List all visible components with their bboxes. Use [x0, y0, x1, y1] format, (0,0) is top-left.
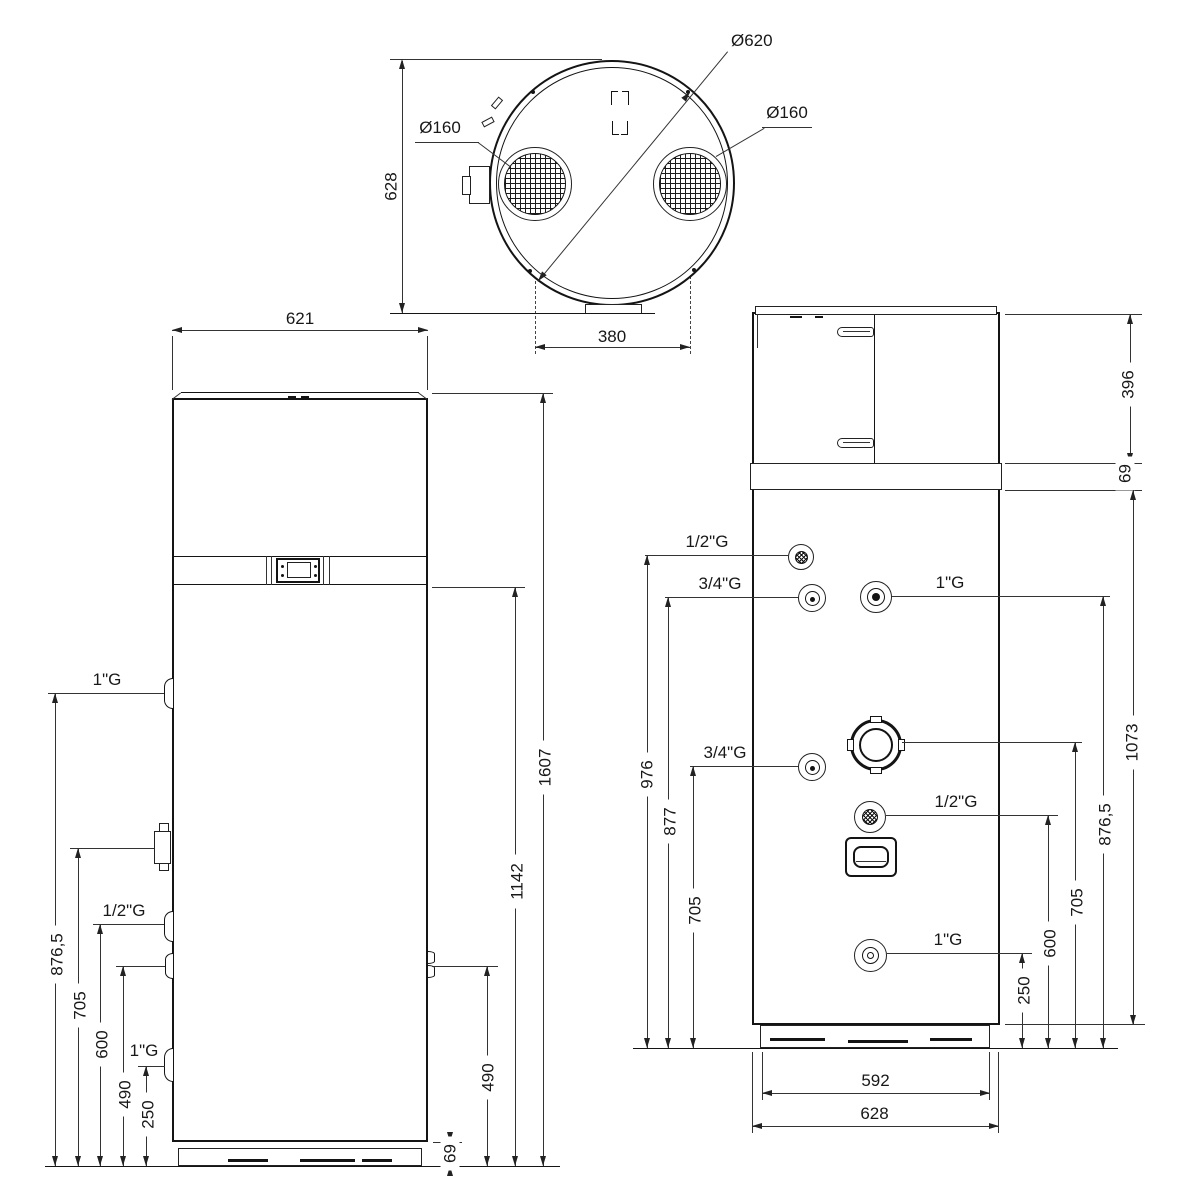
dim-side-top-section: 396 — [1119, 363, 1138, 407]
mount-dot — [692, 268, 696, 272]
front-top-cap — [181, 392, 419, 393]
mount-dot — [528, 269, 532, 273]
band-separator — [329, 556, 330, 585]
dim-front-width: 621 — [280, 309, 320, 328]
dim-side-600: 600 — [1041, 922, 1060, 966]
dim-side-250: 250 — [1015, 969, 1034, 1013]
dim-front-h3: 600 — [93, 1023, 112, 1067]
latch-bump — [428, 951, 435, 964]
dim-depth: 628 — [382, 167, 401, 207]
side-foot — [770, 1038, 825, 1041]
mount-dot — [531, 90, 535, 94]
side-floor-line — [633, 1048, 1118, 1049]
dim-front-h5: 250 — [139, 1093, 158, 1137]
dim-arrow — [989, 1123, 999, 1129]
front-body — [172, 398, 428, 1142]
side-clip-inner — [462, 176, 471, 195]
leader-port-top — [48, 693, 164, 694]
band-separator — [266, 556, 267, 585]
port-label-p5: 1/2"G — [916, 792, 996, 811]
dim-arrow — [644, 555, 650, 565]
flange-tab-n — [870, 716, 882, 723]
dim-arrow — [665, 597, 671, 607]
front-top-tick — [301, 396, 309, 398]
dim-arrow — [172, 327, 182, 333]
side-seam — [874, 315, 875, 463]
dim-arrow — [540, 393, 546, 403]
side-body — [752, 312, 1000, 1025]
dim-front-band: 1142 — [508, 855, 527, 909]
dim-arrow — [512, 1156, 518, 1166]
leader-grille-right — [762, 127, 812, 128]
leader-grille-left — [415, 142, 479, 143]
port-label-p1: 1/2"G — [668, 532, 746, 551]
dim-side-705-left: 705 — [686, 889, 705, 933]
dim-arrow — [75, 1156, 81, 1166]
side-band — [750, 463, 1002, 490]
ext-line-total — [432, 393, 553, 394]
dim-side-705-right: 705 — [1068, 881, 1087, 925]
port-bump-small — [165, 953, 173, 979]
control-band-bottom — [172, 584, 428, 585]
side-left-notch — [757, 314, 758, 348]
display-screen[interactable] — [287, 562, 311, 578]
dim-line-duct-spacing — [535, 347, 690, 348]
dim-arrow — [665, 1038, 671, 1048]
dim-front-latch: 490 — [479, 1056, 498, 1100]
leader-port-middle — [93, 924, 164, 925]
hinge-bottom — [837, 438, 874, 448]
dim-front-h4: 490 — [116, 1073, 135, 1117]
front-floor-line — [45, 1166, 560, 1167]
band-separator — [323, 556, 324, 585]
dim-line-976 — [647, 555, 648, 1048]
dim-side-tank: 1073 — [1123, 716, 1142, 770]
port-p5-inner — [862, 809, 878, 825]
port-p1-inner — [795, 551, 808, 564]
side-clip-outer — [469, 166, 490, 204]
hinge-bottom-line — [843, 442, 870, 443]
side-foot — [930, 1038, 972, 1041]
dim-arrow — [1045, 1038, 1051, 1048]
dim-arrow — [644, 1038, 650, 1048]
port-label-p6: 1"G — [924, 930, 972, 949]
leader-flange — [70, 848, 154, 849]
dim-arrow — [75, 848, 81, 858]
base-line-top-view — [390, 313, 655, 314]
air-grille-left-mesh — [504, 153, 566, 215]
service-slot-line — [856, 861, 886, 862]
dim-arrow — [762, 1090, 772, 1096]
leader-p6 — [887, 953, 1032, 954]
port-label-bottom: 1"G — [122, 1041, 166, 1060]
side-top-tick — [815, 316, 823, 318]
dim-arrow — [1072, 1038, 1078, 1048]
dim-arrow — [97, 924, 103, 934]
dim-line-front-width — [172, 330, 428, 331]
dim-side-base-width: 592 — [853, 1071, 898, 1090]
dim-arrow — [690, 1038, 696, 1048]
dim-arrow — [97, 1156, 103, 1166]
front-foot — [300, 1159, 355, 1162]
port-p2-center — [810, 597, 815, 602]
dim-front-total: 1607 — [536, 741, 555, 795]
leader-p3 — [892, 596, 1110, 597]
dim-arrow — [690, 766, 696, 776]
technical-drawing-heat-pump-water-heater: Ø620 Ø160 Ø160 628 380 — [0, 0, 1200, 1200]
ext-line-side-top — [1005, 314, 1142, 315]
air-grille-right-mesh — [659, 153, 721, 215]
display-button[interactable] — [314, 574, 317, 577]
dim-front-h2: 705 — [71, 984, 90, 1028]
dim-duct-spacing: 380 — [592, 327, 632, 346]
dim-arrow — [512, 587, 518, 597]
front-plinth — [178, 1148, 422, 1166]
port-bump-top — [164, 678, 173, 709]
slot-bracket-top-left — [611, 91, 618, 105]
slot-bracket-bottom-right — [621, 121, 628, 135]
band-separator — [271, 556, 272, 585]
side-foot — [848, 1040, 908, 1043]
hinge-top — [837, 327, 874, 337]
leader-p2 — [665, 597, 798, 598]
dim-arrow — [680, 344, 690, 350]
dim-arrow — [418, 327, 428, 333]
port-label-p4: 3/4"G — [687, 743, 763, 762]
ext-line — [427, 336, 428, 390]
dim-arrow — [143, 1066, 149, 1076]
dim-grille-left-dia: Ø160 — [413, 118, 467, 137]
flange-bracket — [154, 831, 171, 864]
front-foot — [362, 1159, 392, 1162]
edge-tab-upper — [491, 96, 503, 109]
slot-bracket-top-right — [622, 91, 629, 105]
dim-arrow — [52, 693, 58, 703]
dim-line-depth — [402, 61, 403, 313]
dim-arrow — [1127, 314, 1133, 324]
dim-arrow — [1130, 1015, 1136, 1025]
port-bump-middle — [164, 911, 173, 942]
dim-arrow — [399, 303, 405, 313]
dim-grille-right-dia: Ø160 — [760, 103, 814, 122]
ext-line-628-left — [752, 1052, 753, 1133]
dim-arrow — [1130, 490, 1136, 500]
dim-side-976: 976 — [638, 753, 657, 797]
dim-arrow — [484, 1156, 490, 1166]
port-label-p2: 3/4"G — [682, 574, 758, 593]
dim-arrow — [143, 1156, 149, 1166]
dim-line-592 — [762, 1093, 990, 1094]
dim-overall-dia: Ø620 — [731, 31, 787, 50]
leader-flange — [902, 742, 1082, 743]
display-button[interactable] — [314, 565, 317, 568]
dim-side-877: 877 — [661, 800, 680, 844]
flange-bracket-tab-top — [159, 823, 169, 832]
port-p3-center — [872, 593, 880, 601]
flange-tab-s — [870, 767, 882, 774]
dim-side-overall-width: 628 — [852, 1104, 897, 1123]
dim-arrow — [1045, 815, 1051, 825]
dim-arrow — [1100, 1038, 1106, 1048]
port-label-middle: 1/2"G — [92, 901, 156, 920]
dim-arrow — [980, 1090, 990, 1096]
slot-bracket-bottom-left — [612, 121, 619, 135]
dim-arrow — [1100, 596, 1106, 606]
display-button[interactable] — [281, 565, 284, 568]
dim-side-8765: 876,5 — [1096, 796, 1115, 854]
flange-tab-w — [847, 739, 854, 751]
dim-arrow — [484, 966, 490, 976]
leader-p5 — [886, 815, 1058, 816]
ext-line-628-right — [998, 1052, 999, 1133]
hinge-top-line — [843, 331, 870, 332]
ext-line-top — [390, 59, 602, 60]
flange-inner — [859, 728, 893, 762]
ext-line — [172, 336, 173, 390]
port-label-p3: 1"G — [926, 573, 974, 592]
dim-arrow — [535, 344, 545, 350]
side-plinth — [760, 1025, 990, 1048]
dim-arrow — [540, 1156, 546, 1166]
dim-arrow — [120, 1156, 126, 1166]
leader-p4 — [690, 766, 798, 767]
port-p6-center — [867, 952, 874, 959]
display-button[interactable] — [281, 574, 284, 577]
port-label-top: 1"G — [83, 670, 131, 689]
dim-arrow — [399, 59, 405, 69]
side-top-cap — [755, 306, 997, 315]
dim-arrow — [120, 966, 126, 976]
dim-arrow — [1019, 1038, 1025, 1048]
front-top-tick — [288, 396, 296, 398]
leader-p1 — [645, 555, 788, 556]
dim-line-h4 — [123, 966, 124, 1166]
dim-arrow — [1019, 953, 1025, 963]
dim-arrow — [52, 1156, 58, 1166]
front-foot — [228, 1159, 268, 1162]
side-top-tick — [790, 316, 802, 318]
dim-arrow — [752, 1123, 762, 1129]
service-slot-inner — [853, 846, 889, 868]
dim-front-plinth: 69 — [441, 1137, 460, 1171]
dim-line-628 — [752, 1126, 999, 1127]
ext-line-tank-bottom — [1005, 1024, 1145, 1025]
port-p4-center — [810, 766, 815, 771]
dim-front-h1: 876,5 — [48, 926, 67, 984]
flange-bracket-tab-bottom — [159, 863, 169, 871]
dim-arrow — [1072, 742, 1078, 752]
dim-side-band: 69 — [1116, 457, 1135, 491]
flange-tab-e — [898, 739, 905, 751]
edge-tab-lower — [481, 117, 494, 128]
